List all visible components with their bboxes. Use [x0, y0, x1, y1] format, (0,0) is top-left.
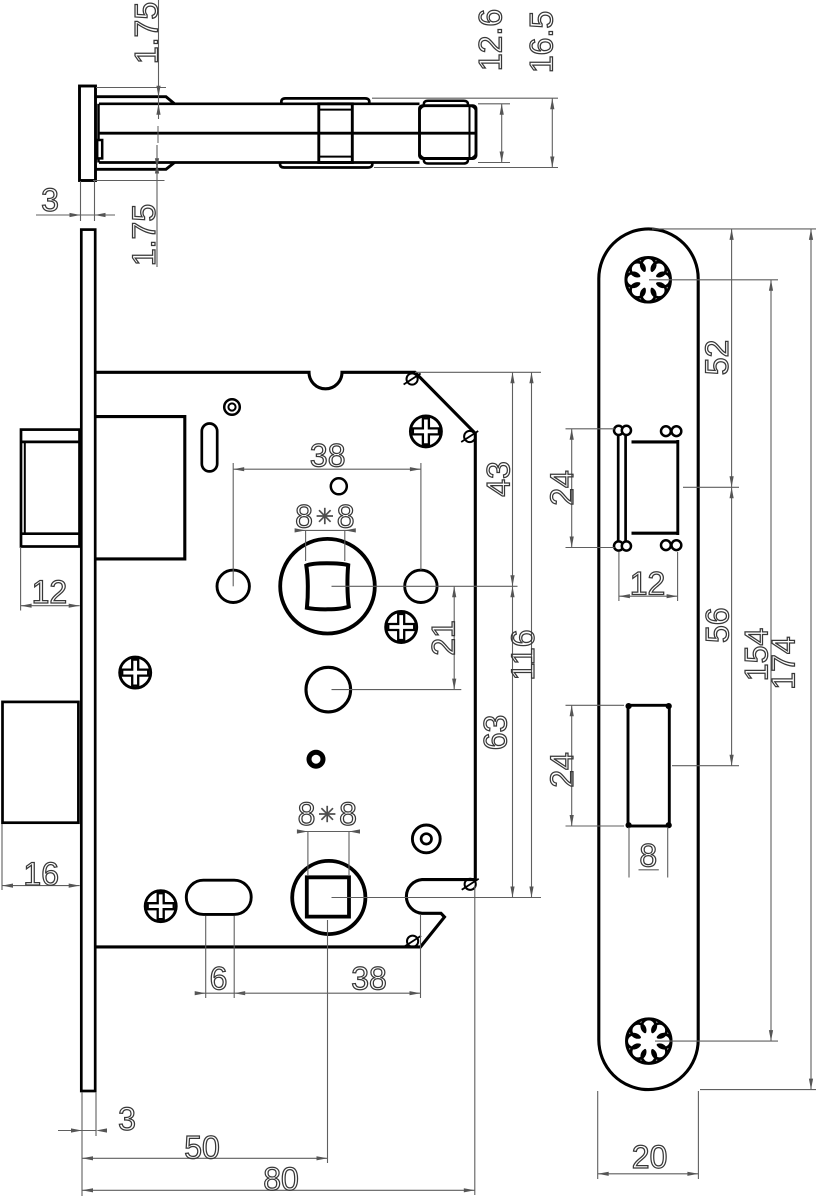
svg-text:3: 3	[41, 182, 59, 218]
svg-text:38: 38	[310, 438, 346, 474]
svg-text:8: 8	[295, 499, 313, 535]
svg-text:8: 8	[298, 796, 316, 832]
svg-text:38: 38	[351, 961, 387, 997]
svg-text:12: 12	[32, 574, 68, 610]
svg-text:8: 8	[337, 499, 355, 535]
svg-text:50: 50	[184, 1130, 220, 1166]
svg-text:24: 24	[544, 470, 580, 506]
svg-text:8: 8	[339, 796, 357, 832]
svg-text:1.75: 1.75	[129, 2, 165, 64]
svg-text:16.5: 16.5	[523, 11, 559, 73]
svg-text:20: 20	[632, 1139, 668, 1175]
svg-text:12.6: 12.6	[473, 9, 509, 71]
svg-text:174: 174	[766, 636, 802, 689]
svg-text:24: 24	[544, 752, 580, 788]
svg-text:43: 43	[481, 461, 517, 497]
svg-text:80: 80	[263, 1161, 299, 1197]
svg-text:3: 3	[118, 1101, 136, 1137]
svg-text:1.75: 1.75	[126, 204, 162, 266]
svg-text:21: 21	[425, 620, 461, 656]
svg-text:6: 6	[210, 961, 228, 997]
svg-text:12: 12	[630, 566, 666, 602]
svg-text:56: 56	[699, 607, 735, 643]
svg-text:16: 16	[23, 856, 59, 892]
svg-text:63: 63	[478, 715, 514, 751]
svg-text:52: 52	[699, 340, 735, 376]
svg-text:8: 8	[639, 838, 657, 874]
svg-text:116: 116	[505, 629, 541, 680]
